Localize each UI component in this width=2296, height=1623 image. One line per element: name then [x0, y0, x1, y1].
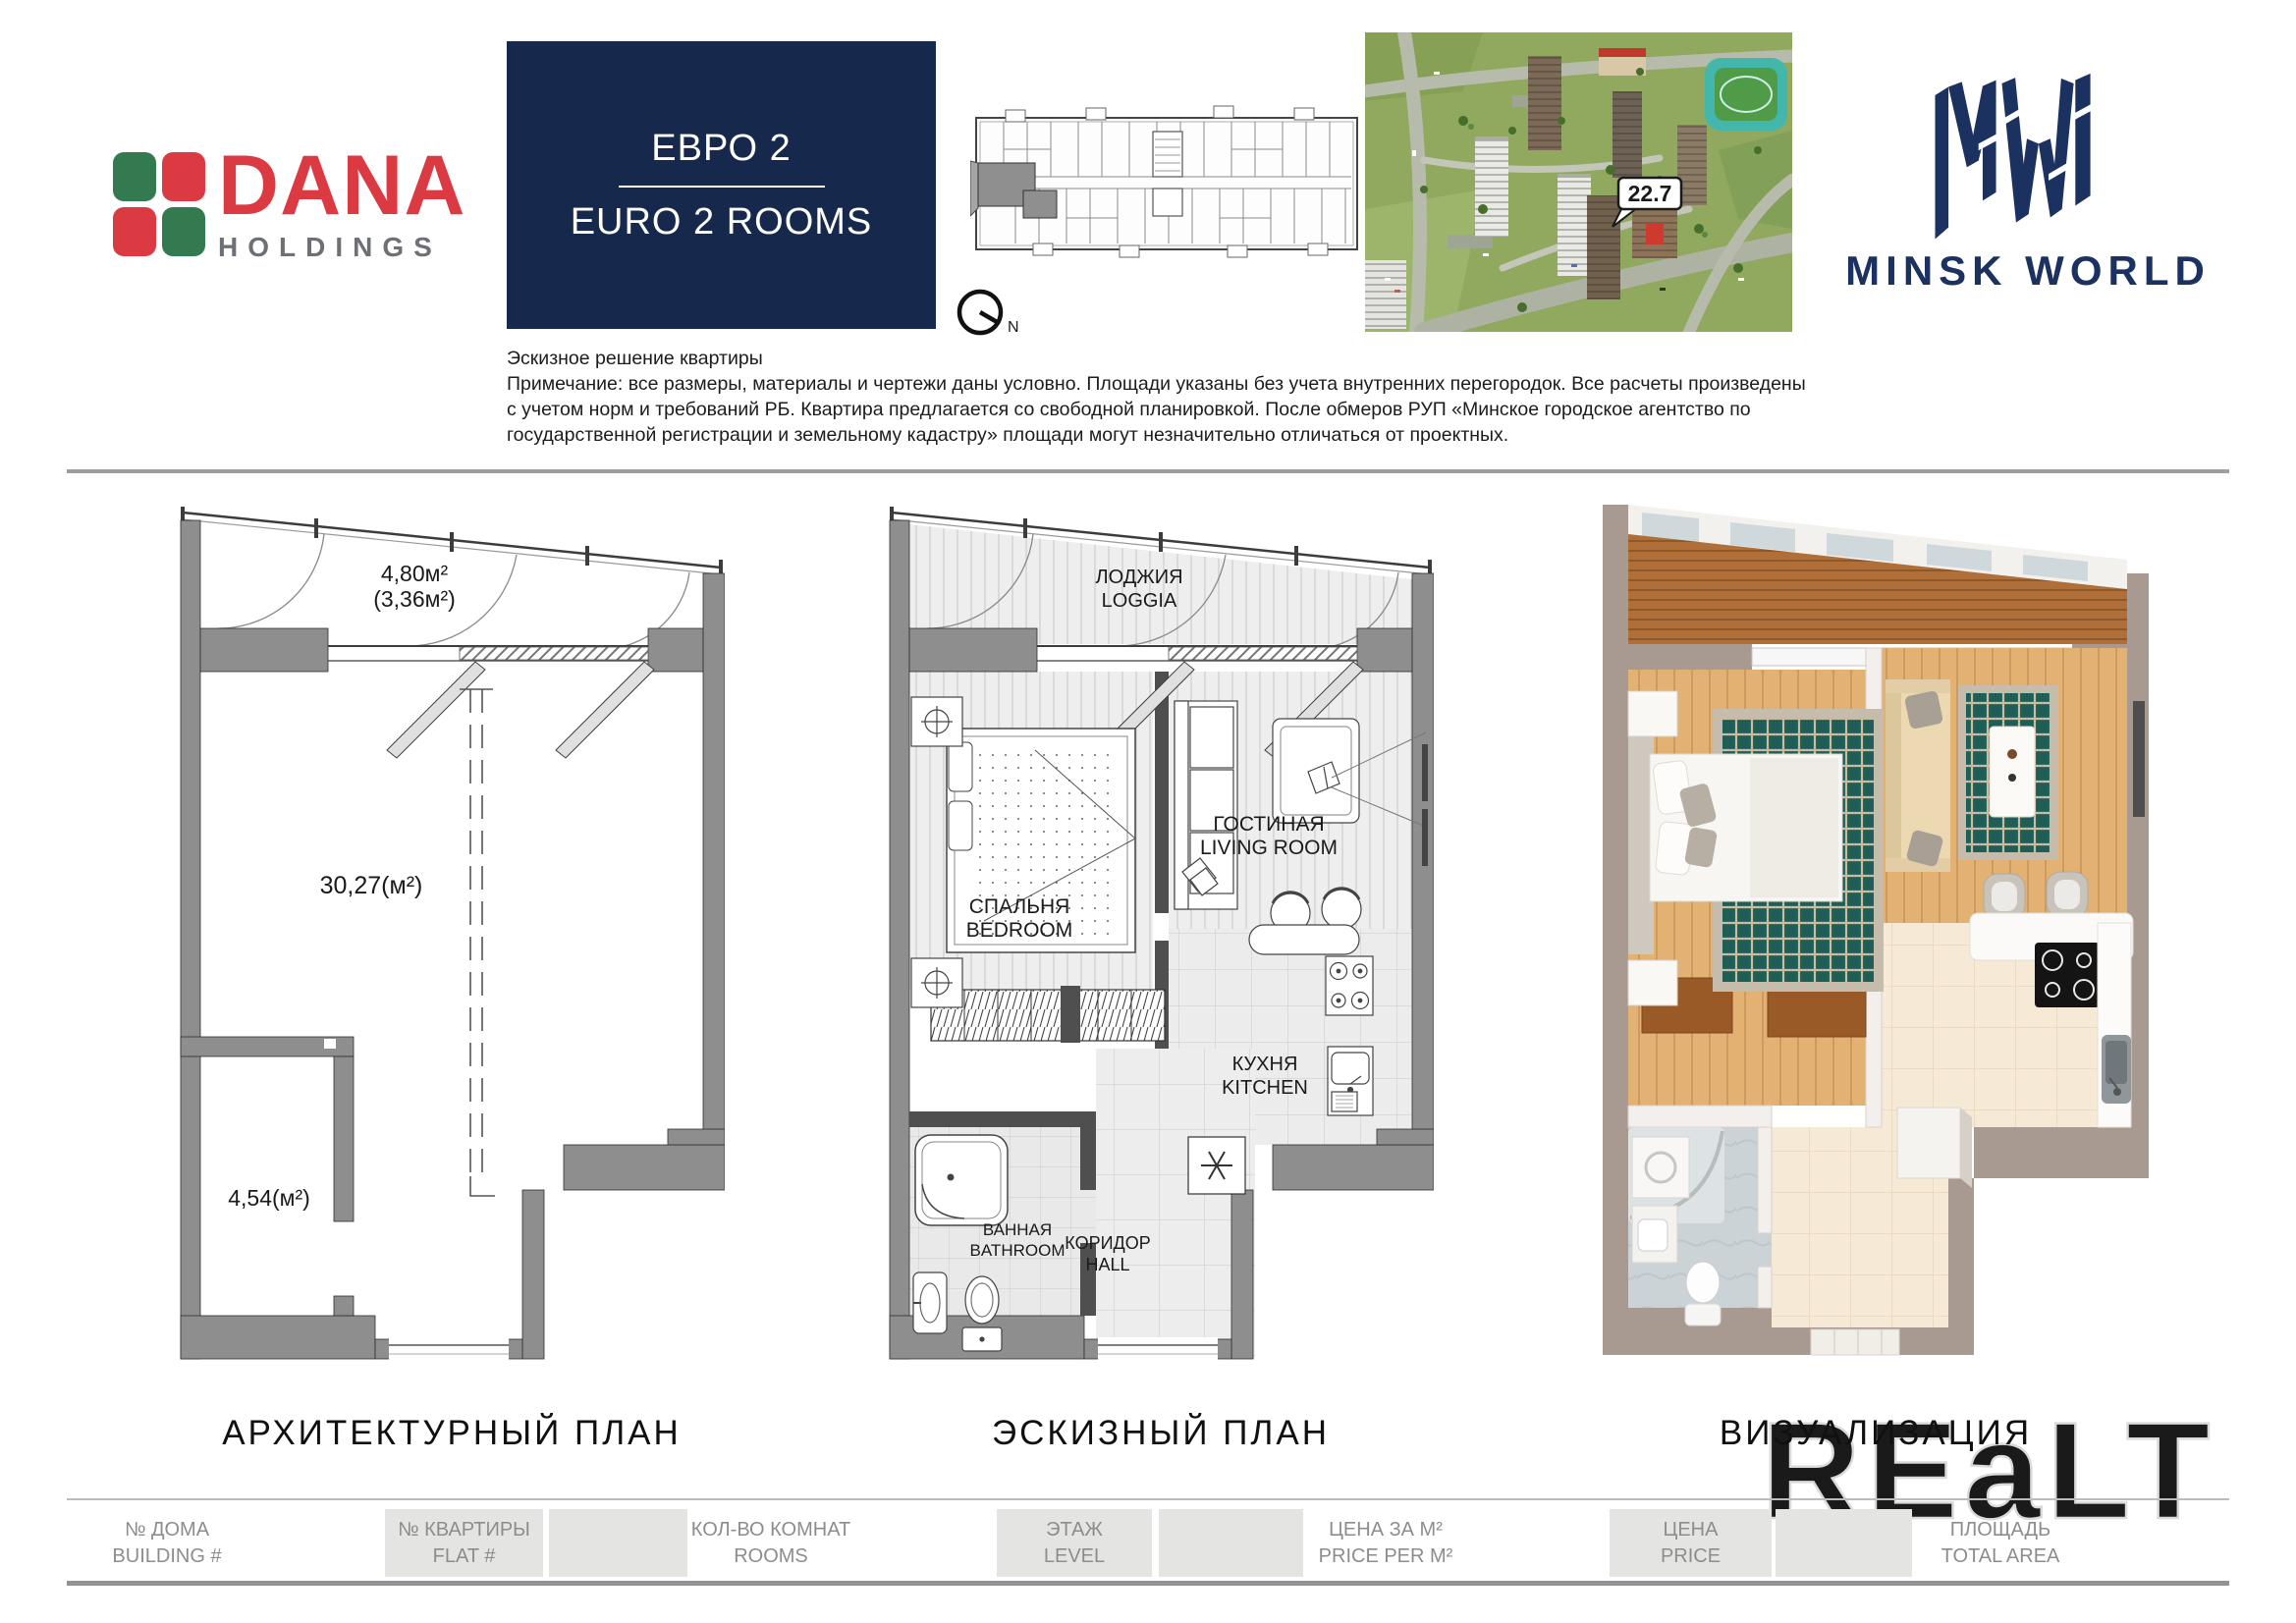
dana-logo-name: DANA [218, 145, 483, 226]
toilet [962, 1276, 1002, 1351]
footer-area-ru: ПЛОЩАДЬ [1950, 1517, 2050, 1543]
footer-price-m2-label: ЦЕНА ЗА М² PRICE PER M² [1292, 1509, 1479, 1577]
washer [1632, 1137, 1689, 1198]
footer-flat-ru: № КВАРТИРЫ [398, 1517, 530, 1543]
window-line [1037, 646, 1357, 661]
minsk-world-wordmark: MINSK WORLD [1836, 247, 2219, 295]
bedroom-label-ru: СПАЛЬНЯ [969, 895, 1070, 918]
bathroom-label-en: BATHROOM [970, 1241, 1066, 1260]
window-line [328, 646, 648, 661]
hall-label-ru: КОРИДОР [1065, 1233, 1150, 1253]
cooktop [2035, 943, 2100, 1007]
unit-type-ru: ЕВРО 2 [651, 128, 791, 170]
coffee-table [1990, 727, 2035, 817]
footer-price-ru: ЦЕНА [1664, 1517, 1719, 1543]
footer-building-ru: № ДОМА [125, 1517, 209, 1543]
unit-type-divider [619, 186, 825, 188]
footer-rooms-label: КОЛ-ВО КОМНАТ ROOMS [678, 1509, 864, 1577]
header-divider [67, 469, 2229, 473]
sofa [1886, 679, 1950, 872]
main-area-label: 30,27(м²) [320, 872, 423, 899]
footer-level-en: LEVEL [1044, 1543, 1105, 1570]
storage-area-label: 4,54(м²) [228, 1185, 310, 1211]
balcony-area-reduced-label: (3,36м²) [373, 586, 456, 612]
loggia-label-ru: ЛОДЖИЯ [1095, 567, 1182, 588]
dana-logo-subtitle: HOLDINGS [218, 232, 483, 263]
bedroom-label-en: BEDROOM [966, 919, 1073, 942]
balcony-area-label: 4,80м² [381, 561, 449, 586]
free-plan-partition [460, 689, 495, 1196]
footer-flat-en: FLAT # [433, 1543, 496, 1570]
footer-rooms-en: ROOMS [734, 1543, 808, 1570]
footer-top-rule [67, 1498, 2229, 1500]
footer-level-value-box [1159, 1509, 1303, 1577]
nightstand-bottom [1628, 960, 1677, 1005]
wardrobe-2 [1768, 988, 1866, 1037]
sketch-plan-drawing: ЛОДЖИЯ LOGGIA СПАЛЬНЯ BEDROOM ГОСТИНАЯ L… [888, 497, 1434, 1380]
unit-type-box: ЕВРО 2 EURO 2 ROOMS [507, 41, 936, 329]
footer-building-label: № ДОМА BUILDING # [74, 1509, 260, 1577]
footer-flat-value-box [549, 1509, 687, 1577]
washbasin [913, 1272, 947, 1333]
sofa [1175, 701, 1237, 909]
sketch-plan-title: ЭСКИЗНЫЙ ПЛАН [888, 1414, 1434, 1453]
building-level-plan [970, 81, 1363, 287]
kitchen-label-en: KITCHEN [1222, 1077, 1308, 1099]
dana-square-red-tr [162, 152, 205, 201]
wardrobe [931, 986, 1165, 1043]
bath-cabinet [1632, 1206, 1677, 1263]
footer-area-label: ПЛОЩАДЬ TOTAL AREA [1907, 1509, 2094, 1577]
stadium [1705, 58, 1787, 131]
kitchen-label-ru: КУХНЯ [1232, 1054, 1298, 1075]
footer-price-en: PRICE [1661, 1543, 1721, 1570]
living-label-en: LIVING ROOM [1200, 837, 1338, 859]
door-leaves [387, 662, 654, 758]
footer-price-label: ЦЕНА PRICE [1610, 1509, 1772, 1577]
stove [1326, 956, 1373, 1015]
footer-building-en: BUILDING # [112, 1543, 221, 1570]
compass-north-label: N [1008, 319, 1019, 336]
living-label-ru: ГОСТИНАЯ [1213, 813, 1324, 836]
kitchen-sink [1328, 1047, 1373, 1115]
balcony-rail [183, 507, 721, 579]
dana-square-green-tl [113, 152, 156, 201]
disclaimer-note: Эскизное решение квартиры Примечание: вс… [507, 346, 1842, 448]
nightstand-top [1628, 691, 1677, 736]
architectural-plan-title: АРХИТЕКТУРНЫЙ ПЛАН [179, 1414, 725, 1453]
footer-level-label: ЭТАЖ LEVEL [997, 1509, 1152, 1577]
loggia-label-en: LOGGIA [1102, 590, 1177, 612]
dana-logo-icon [113, 152, 211, 260]
tv [2133, 701, 2145, 817]
visualization-title: ВИЗУАЛИЗАЦИЯ [1603, 1414, 2149, 1453]
north-compass-icon: N [955, 287, 1039, 346]
architectural-plan-drawing: 4,80м² (3,36м²) 30,27(м²) 4,54(м²) [179, 497, 725, 1380]
dana-square-red-bl [113, 207, 156, 256]
unit-type-en: EURO 2 ROOMS [571, 201, 873, 243]
footer-bottom-rule [67, 1581, 2229, 1586]
footer-price-value-box [1776, 1509, 1912, 1577]
footer-price-m2-ru: ЦЕНА ЗА М² [1329, 1517, 1443, 1543]
wall-notch [324, 1039, 336, 1049]
entry-door [1811, 1329, 1899, 1355]
dana-square-green-br [162, 207, 205, 256]
note-line-4: государственной регистрации и земельному… [507, 422, 1842, 448]
entry-opening [1098, 1337, 1218, 1361]
footer-level-ru: ЭТАЖ [1046, 1517, 1103, 1543]
tv-panel-2 [1422, 809, 1428, 866]
footer-area-en: TOTAL AREA [1941, 1543, 2060, 1570]
bathroom-label-ru: ВАННАЯ [983, 1220, 1052, 1239]
note-line-3: с учетом норм и требований РБ. Квартира … [507, 397, 1842, 422]
entry-opening [389, 1337, 509, 1361]
dana-logo: DANA HOLDINGS [218, 145, 483, 263]
hall-label-en: HALL [1085, 1255, 1129, 1274]
boiler [1188, 1137, 1245, 1194]
callout-value: 22.7 [1628, 181, 1672, 206]
footer-flat-label: № КВАРТИРЫ FLAT # [385, 1509, 543, 1577]
site-aerial-view: 22.7 [1365, 32, 1792, 332]
note-line-2: Примечание: все размеры, материалы и чер… [507, 371, 1842, 397]
footer-rooms-ru: КОЛ-ВО КОМНАТ [691, 1517, 850, 1543]
toilet [1685, 1262, 1721, 1325]
kitchen-sink [2102, 1035, 2131, 1104]
footer-price-m2-en: PRICE PER M² [1319, 1543, 1453, 1570]
visualization-render [1603, 491, 2149, 1375]
shower [915, 1135, 1008, 1225]
tv-panel [1422, 744, 1428, 801]
minsk-world-monogram-icon [1927, 67, 2094, 259]
note-line-1: Эскизное решение квартиры [507, 346, 1842, 371]
kitchen-island [1897, 1108, 1972, 1188]
